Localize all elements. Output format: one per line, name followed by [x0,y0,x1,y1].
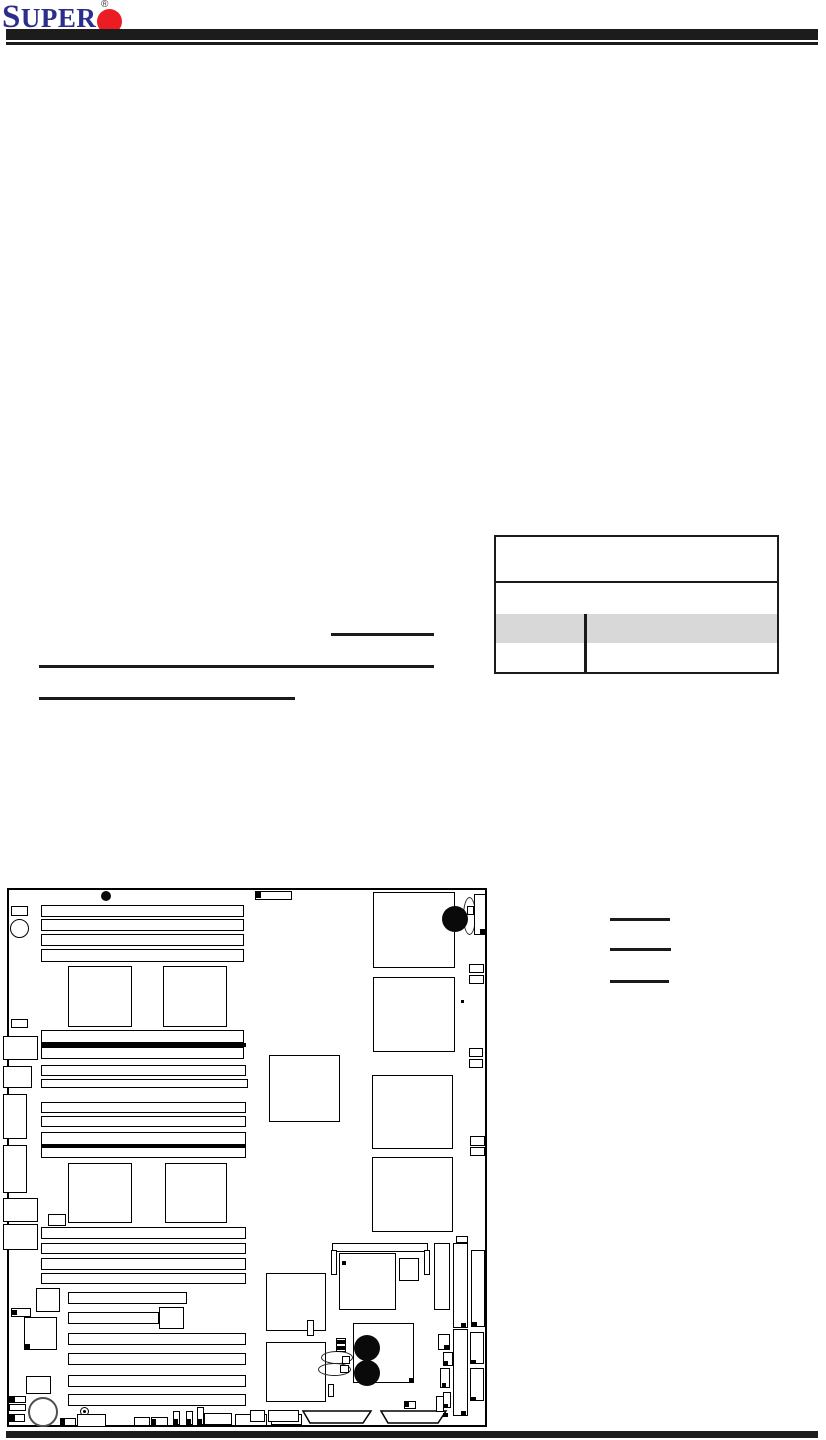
dimm-slot [41,919,244,931]
manual-page: SUPER ® [0,0,826,1440]
connector [434,1243,450,1310]
legend-line-3 [610,980,669,983]
pin1-mark [187,1419,191,1424]
io-port [3,1036,38,1060]
connector [470,1147,485,1156]
mounting-hole [101,891,111,901]
pin1-mark [405,1402,409,1407]
spec-table-shaded-row [496,614,777,643]
sata-port [453,1243,468,1328]
legend-line-1 [610,918,670,921]
connector [134,1417,150,1426]
pin1-mark [444,1361,448,1365]
chip [36,1288,60,1312]
spec-table-header-row [496,537,777,583]
text-underline-3 [39,697,295,700]
pci-slot [68,1312,159,1324]
pin1-mark [61,1419,65,1425]
connector [467,906,474,915]
pin1-mark [471,1397,476,1401]
capacitor [354,1360,380,1386]
connector [307,1320,314,1336]
dimm-slot [41,1227,246,1239]
pin1-mark [198,1419,202,1424]
footer-rule [6,1431,818,1438]
connector [469,1059,483,1068]
registered-trademark: ® [101,0,108,10]
connector [77,1414,106,1427]
connector [11,906,28,916]
io-port [3,1094,27,1139]
pci-slot [68,1333,246,1345]
pin1-mark [461,1323,466,1327]
cpu-socket [68,966,132,1027]
header-rule-thin [6,42,818,45]
pin1-mark [256,892,261,898]
chip [399,1258,419,1281]
spec-table-row [496,643,777,672]
connector [11,1019,28,1028]
capacitor [354,1335,380,1361]
connector [469,1048,483,1057]
pin1-mark [25,1344,30,1349]
sata-port [453,1329,468,1416]
connector [424,1250,430,1275]
chip [373,892,455,968]
connector [204,1413,232,1425]
spec-table-column-divider [584,614,587,672]
chip [266,1342,326,1402]
connector [469,964,484,973]
connector [331,1250,337,1275]
chip [372,1157,453,1232]
pin1-mark [443,1413,448,1417]
pci-slot [68,1353,246,1365]
pci-slot [68,1394,246,1406]
pin1-mark [444,1345,449,1350]
connector [250,1410,265,1422]
spec-table [494,535,779,674]
connector [48,1214,66,1226]
chipset [269,1055,340,1122]
header-rule-thick [6,29,818,40]
pin1-mark [152,1419,156,1425]
dimm-slot [41,934,244,946]
slot-divider [41,1144,246,1148]
pin1-mark [472,1322,477,1326]
dimm-slot [41,1079,248,1088]
chip [159,1307,184,1329]
pin1-mark [409,1378,413,1382]
pin1-mark [461,1411,466,1415]
cpu-socket [68,1163,132,1223]
dimm-slot [41,1116,246,1127]
buzzer [28,1397,58,1427]
cpu-socket [163,966,227,1027]
edge-connector [302,1411,372,1424]
dimm-slot [41,1273,246,1284]
spec-table-row [496,585,777,614]
pin1-mark [342,1261,346,1265]
io-port [3,1224,38,1250]
chip [339,1253,396,1310]
connector [9,1404,26,1411]
pin1-mark [471,1360,476,1364]
dimm-slot [41,1065,246,1076]
dot [461,1000,464,1003]
mounting-hole [10,919,29,938]
sata-port [471,1250,485,1327]
dimm-slot [41,1102,246,1113]
legend-line-2 [610,948,671,951]
capacitor [442,906,468,932]
pci-slot [68,1292,187,1304]
dimm-slot [41,1047,244,1059]
dimm-slot [41,949,244,962]
jumper-pin [337,1340,345,1344]
text-underline-1 [331,633,434,636]
edge-connector [380,1411,447,1424]
connector [328,1384,334,1397]
pin1-mark [10,1415,15,1421]
jumper [340,1365,349,1373]
connector [470,1136,485,1146]
connector [268,1410,299,1422]
connector [332,1243,428,1252]
chip [26,1376,51,1394]
pci-slot [68,1375,246,1387]
pin1-mark [444,1404,448,1408]
jumper [342,1356,350,1364]
connector [469,975,484,984]
pin1-mark [442,1383,446,1387]
pin1-mark [174,1419,178,1424]
io-port [3,1145,27,1193]
pin1-mark [10,1397,15,1402]
pin1-mark [480,929,485,934]
chip [372,1075,453,1149]
dimm-slot [41,905,244,917]
io-port [3,1066,32,1088]
io-port [3,1198,38,1222]
dimm-slot [41,1243,246,1254]
chip [373,977,455,1052]
dimm-slot [41,1258,246,1270]
chip [266,1273,326,1331]
jumper-pin [337,1346,345,1350]
cpu-socket [165,1163,227,1223]
dimm-slot [41,1030,244,1043]
connector [456,1236,468,1243]
pin1-mark [12,1310,17,1315]
text-underline-2 [39,665,434,668]
